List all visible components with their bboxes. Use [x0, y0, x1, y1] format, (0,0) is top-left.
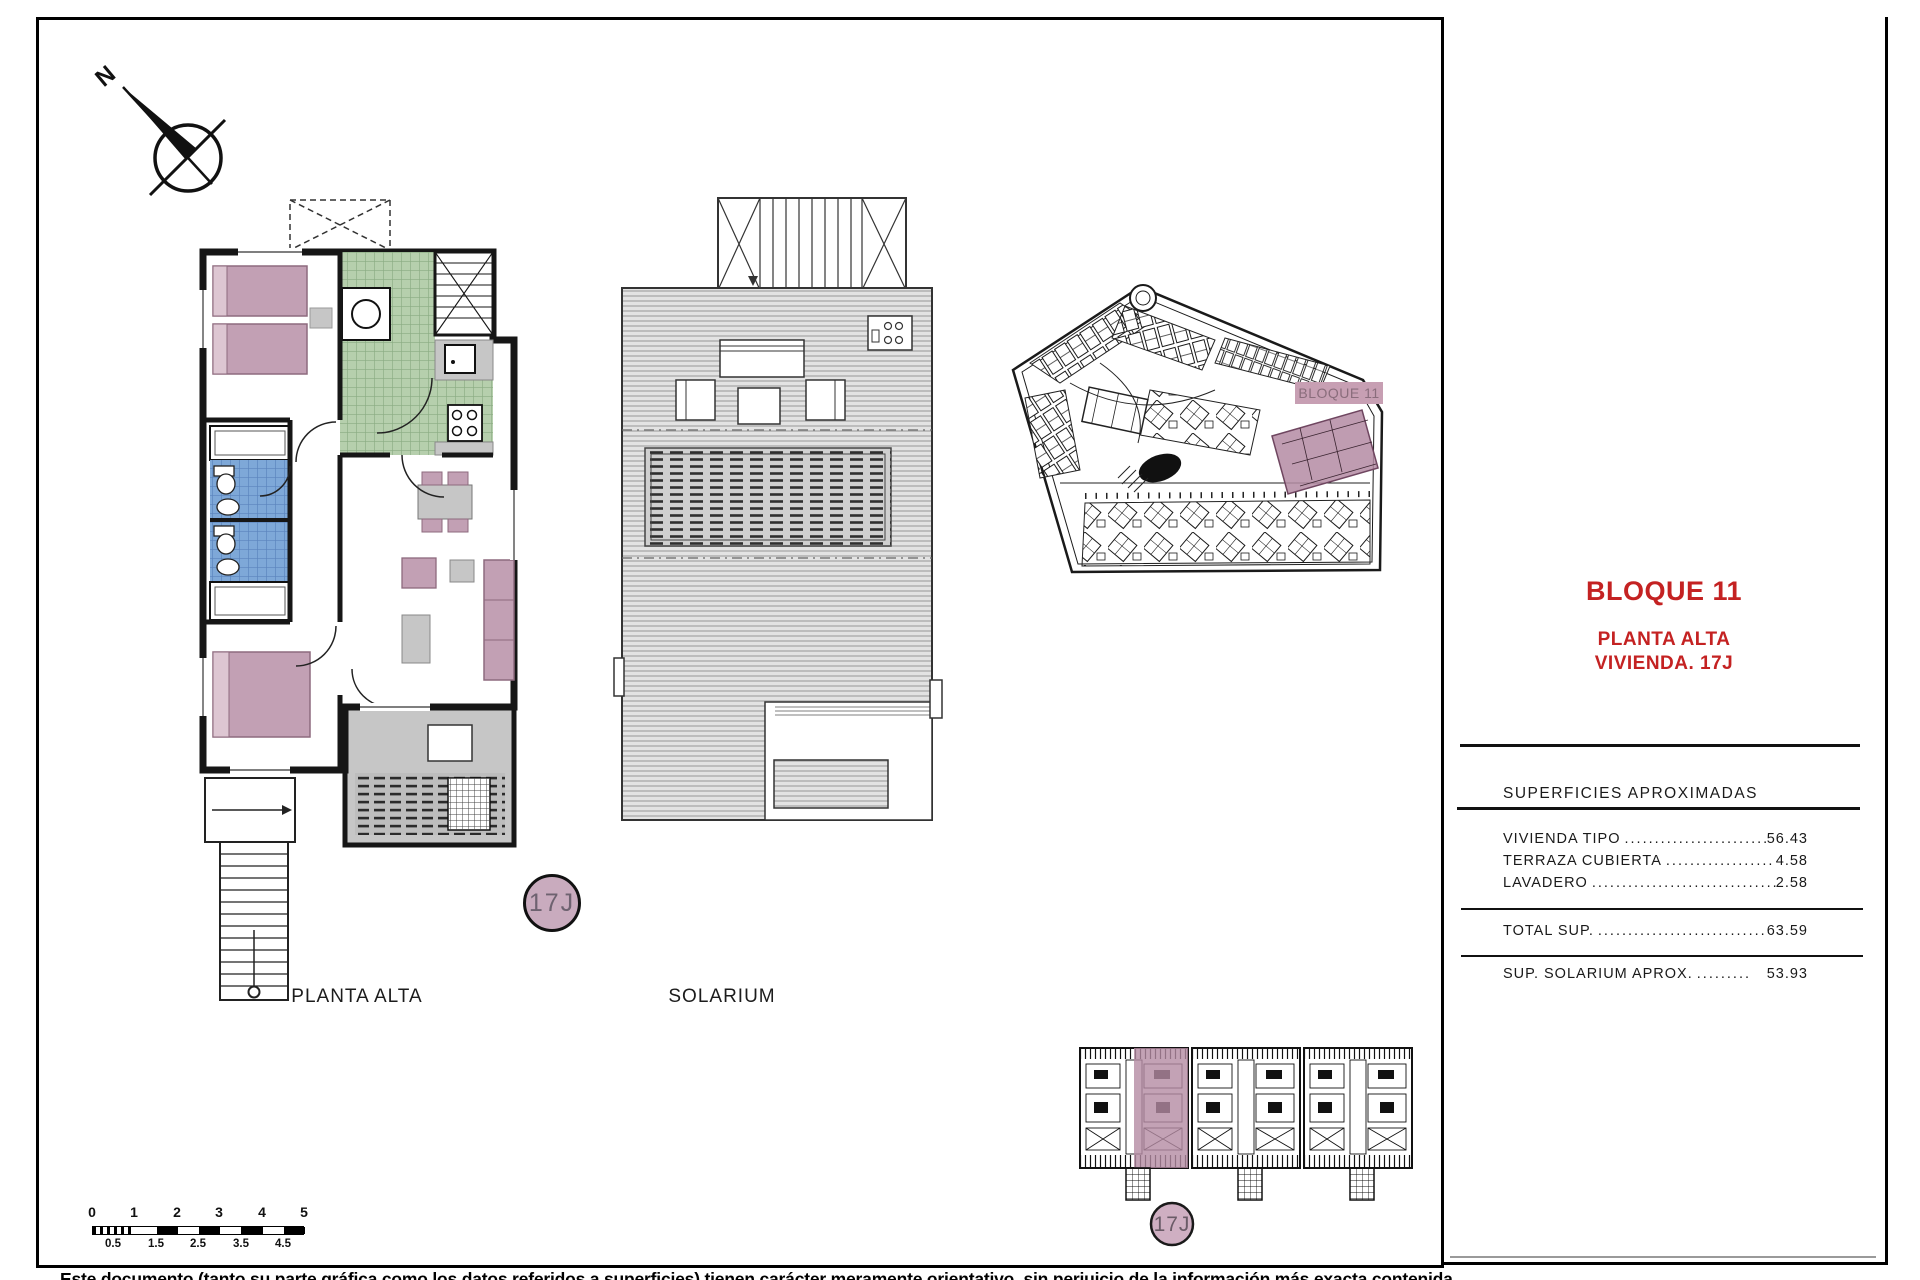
scale-tick: 3: [215, 1204, 223, 1220]
plan-sheet: BLOQUE 11 PLANTA ALTA VIVIENDA. 17J SUPE…: [0, 0, 1920, 1280]
key-plan-drawing: 17J: [1078, 1042, 1423, 1252]
row-label: TERRAZA CUBIERTA: [1503, 853, 1662, 869]
row-value: 56.43: [1767, 831, 1808, 847]
lower-terrace: [765, 702, 932, 820]
scale-bar-strip: [92, 1226, 304, 1235]
external-staircase: [205, 778, 295, 1000]
disclaimer-text: Este documento (tanto su parte gráfica c…: [60, 1269, 1453, 1280]
site-block-label: BLOQUE 11: [1298, 385, 1379, 401]
solarium-drawing: [610, 190, 944, 835]
scale-tick: 1.5: [148, 1238, 164, 1250]
dashed-stair-outline: [290, 200, 390, 250]
row-label: LAVADERO: [1503, 875, 1588, 891]
divider-line: [1460, 744, 1860, 747]
scale-tick: 5: [300, 1204, 308, 1220]
side-door: [614, 658, 624, 696]
row-leader: ..........................: [1621, 831, 1767, 847]
floor-plan-drawing: [150, 190, 545, 1010]
north-label: N: [90, 61, 121, 93]
scale-tick: 0.5: [105, 1238, 121, 1250]
bathrooms: [210, 426, 290, 620]
north-compass-icon: N: [90, 50, 240, 200]
solarium-stair: [718, 198, 906, 290]
surfaces-table: VIVIENDA TIPO ..........................…: [1503, 831, 1808, 897]
row-leader: ................................: [1594, 923, 1767, 939]
scale-bar: 0 1 2 3 4 5 0.5 1.5 2.5 3.5 4.5: [85, 1196, 325, 1258]
scale-tick: 0: [88, 1204, 96, 1220]
row-value: 63.59: [1767, 923, 1808, 939]
row-leader: .........: [1693, 966, 1767, 982]
solarium-caption: SOLARIUM: [622, 986, 822, 1008]
sheet-title: BLOQUE 11: [1444, 576, 1884, 607]
scale-tick: 2.5: [190, 1238, 206, 1250]
key-plan-unit-label: 17J: [1154, 1213, 1191, 1236]
sheet-subtitle-floor: PLANTA ALTA: [1444, 628, 1884, 652]
divider-line: [1457, 807, 1860, 810]
table-row: TERRAZA CUBIERTA .................. 4.58: [1503, 853, 1808, 875]
solarium-row: SUP. SOLARIUM APROX. ......... 53.93: [1503, 966, 1808, 988]
row-leader: ..................: [1662, 853, 1776, 869]
scale-tick: 2: [173, 1204, 181, 1220]
total-row: TOTAL SUP. .............................…: [1503, 923, 1808, 945]
row-value: 2.58: [1776, 875, 1808, 891]
table-row: LAVADERO ...............................…: [1503, 875, 1808, 897]
row-value: 4.58: [1776, 853, 1808, 869]
table-row: VIVIENDA TIPO ..........................…: [1503, 831, 1808, 853]
row-label: TOTAL SUP.: [1503, 923, 1594, 939]
scale-tick: 1: [130, 1204, 138, 1220]
terrace: [345, 707, 514, 845]
surfaces-header: SUPERFICIES APROXIMADAS: [1503, 785, 1758, 803]
floor-plan-caption: PLANTA ALTA: [257, 986, 457, 1008]
row-label: VIVIENDA TIPO: [1503, 831, 1621, 847]
interior-stair: [435, 252, 493, 335]
bedroom-2: [213, 652, 310, 737]
scale-tick: 4.5: [275, 1238, 291, 1250]
scale-tick: 3.5: [233, 1238, 249, 1250]
site-plan-drawing: BLOQUE 11: [1000, 268, 1450, 588]
bbq-unit: [868, 316, 912, 350]
row-leader: ...................................: [1588, 875, 1776, 891]
divider-line: [1461, 955, 1863, 957]
key-plan-blocks: [1080, 1048, 1412, 1200]
unit-badge: 17J: [523, 874, 581, 932]
row-label: SUP. SOLARIUM APROX.: [1503, 966, 1693, 982]
unit-badge-label: 17J: [529, 889, 575, 918]
sheet-subtitle-unit: VIVIENDA. 17J: [1444, 652, 1884, 676]
scale-tick: 4: [258, 1204, 266, 1220]
pergola: [645, 448, 891, 546]
row-value: 53.93: [1767, 966, 1808, 982]
divider-line: [1461, 908, 1863, 910]
sidebar-bottom-rule: [1450, 1256, 1876, 1258]
side-door: [930, 680, 942, 718]
